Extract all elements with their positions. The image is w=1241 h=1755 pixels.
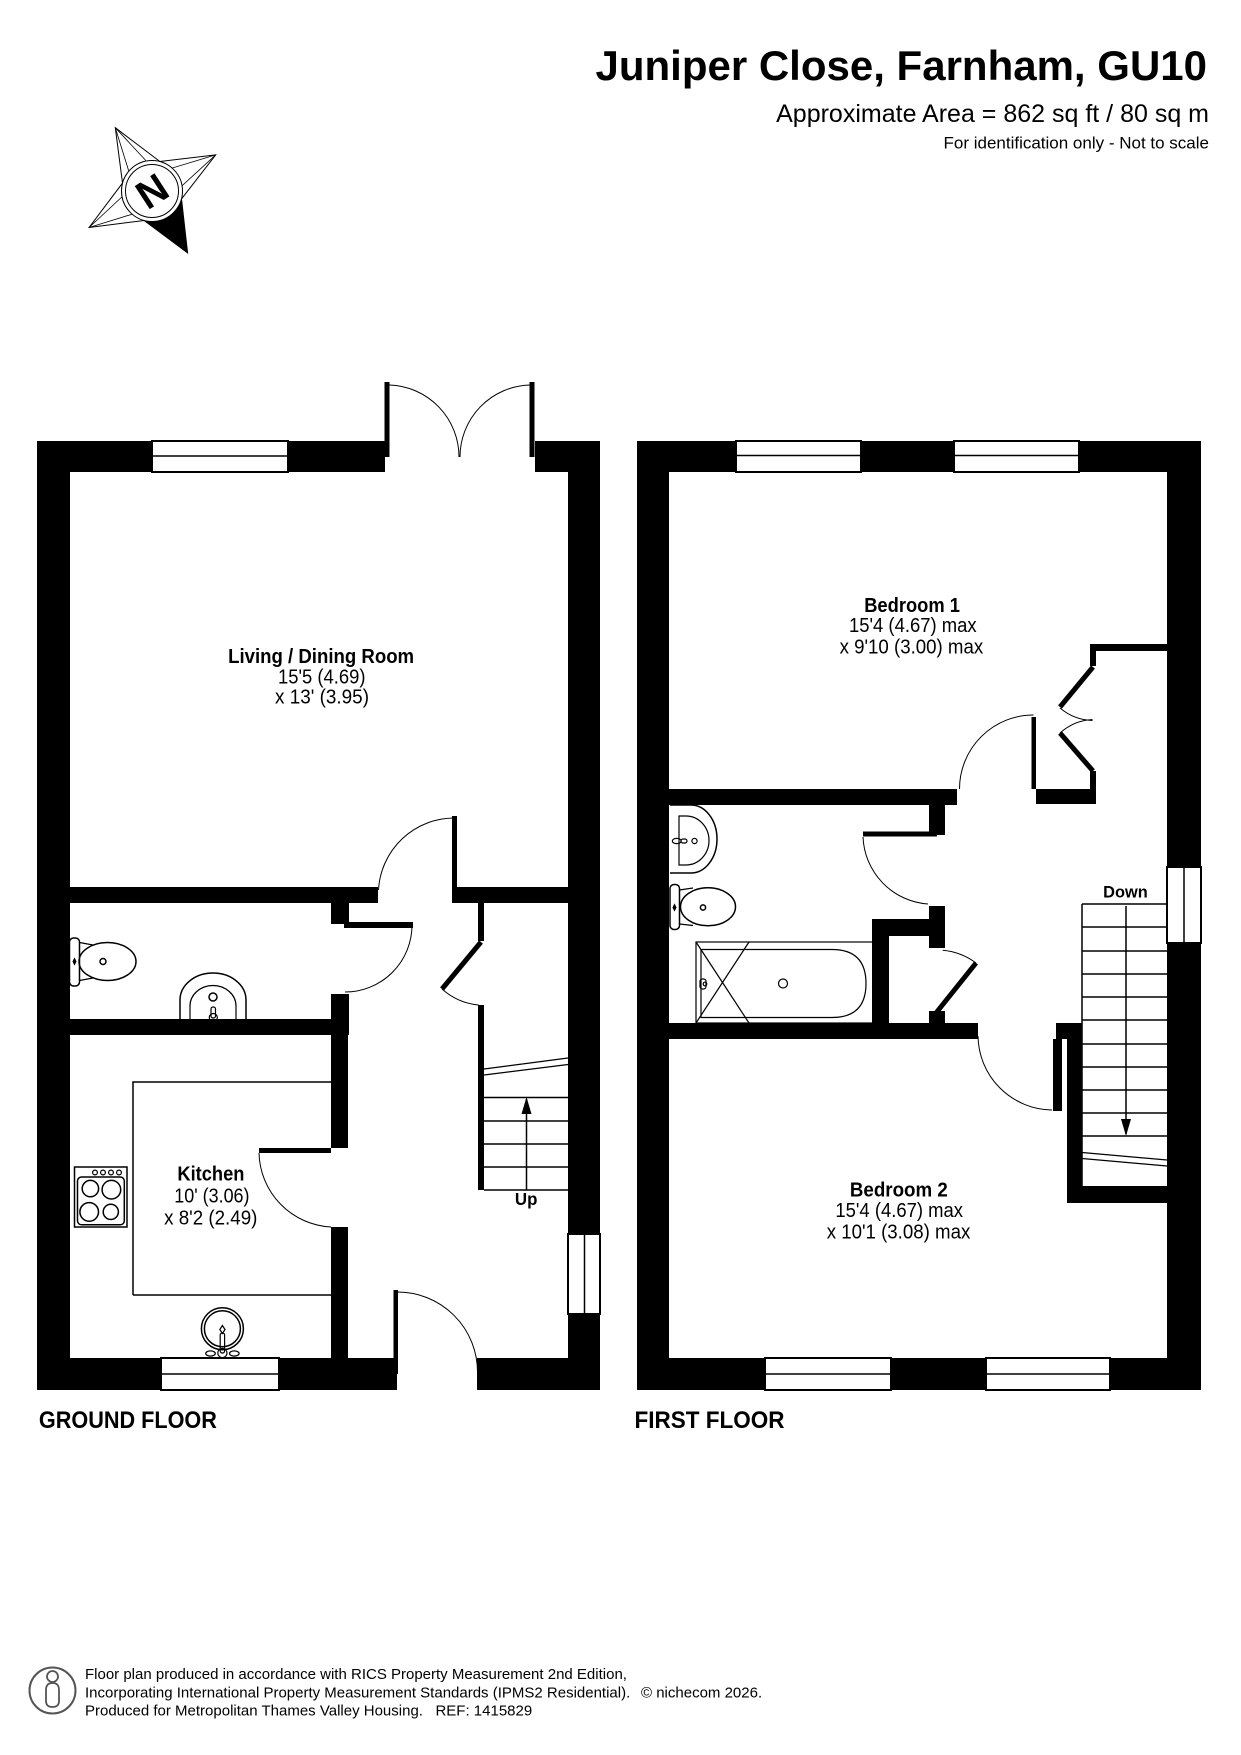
svg-text:© nichecom 2026.: © nichecom 2026. (641, 1685, 762, 1702)
svg-text:Down: Down (1103, 884, 1148, 902)
svg-text:x 10'1 (3.08) max: x 10'1 (3.08) max (827, 1221, 971, 1243)
svg-text:Bedroom 2: Bedroom 2 (850, 1179, 948, 1201)
svg-text:10' (3.06): 10' (3.06) (174, 1186, 249, 1208)
svg-text:Approximate Area = 862 sq ft /: Approximate Area = 862 sq ft / 80 sq m (776, 100, 1209, 128)
svg-text:Juniper Close, Farnham, GU10: Juniper Close, Farnham, GU10 (595, 42, 1207, 89)
svg-text:15'4 (4.67) max: 15'4 (4.67) max (849, 615, 977, 637)
svg-text:15'4 (4.67) max: 15'4 (4.67) max (835, 1200, 963, 1222)
svg-text:15'5 (4.69): 15'5 (4.69) (278, 666, 366, 688)
svg-text:GROUND FLOOR: GROUND FLOOR (39, 1407, 217, 1434)
svg-text:Living / Dining Room: Living / Dining Room (228, 646, 414, 668)
svg-text:FIRST FLOOR: FIRST FLOOR (635, 1407, 785, 1434)
svg-text:x 8'2 (2.49): x 8'2 (2.49) (164, 1207, 257, 1229)
svg-text:Incorporating International Pr: Incorporating International Property Mea… (85, 1685, 630, 1702)
svg-text:For identification only - Not: For identification only - Not to scale (943, 134, 1209, 153)
svg-text:Bedroom 1: Bedroom 1 (864, 595, 960, 617)
svg-text:x 13' (3.95): x 13' (3.95) (275, 687, 369, 709)
svg-text:Floor plan produced in accorda: Floor plan produced in accordance with R… (85, 1666, 627, 1683)
svg-text:Up: Up (515, 1189, 538, 1209)
svg-text:Produced for Metropolitan Tham: Produced for Metropolitan Thames Valley … (85, 1703, 532, 1720)
svg-text:Kitchen: Kitchen (177, 1163, 244, 1185)
svg-text:x 9'10 (3.00) max: x 9'10 (3.00) max (840, 636, 984, 658)
